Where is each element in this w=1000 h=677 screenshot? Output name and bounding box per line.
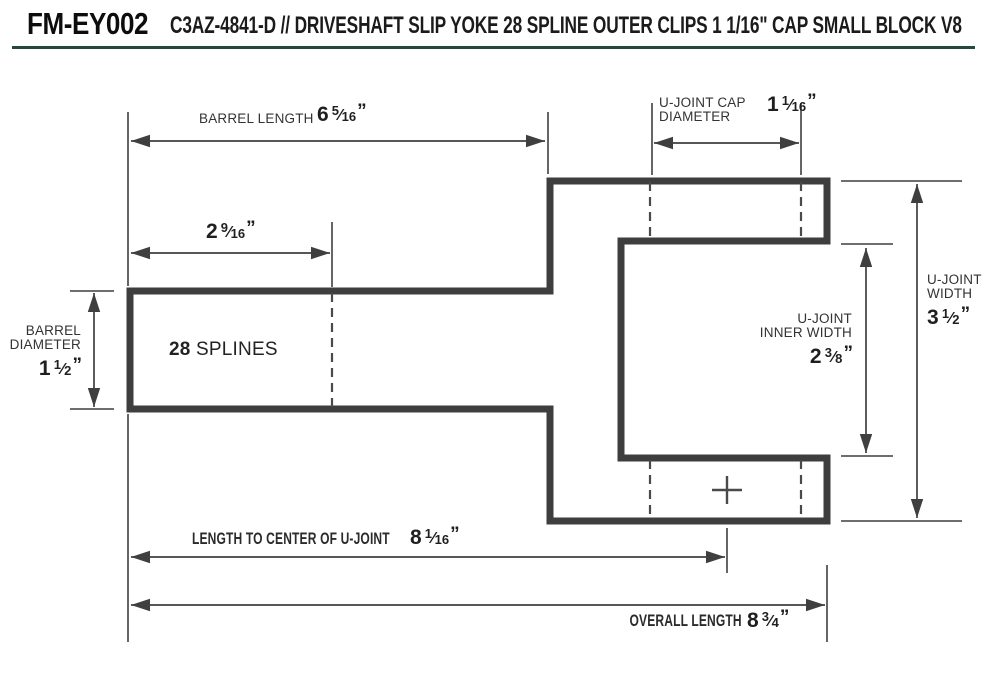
splines-note: 28 SPLINES	[169, 339, 278, 361]
length-to-center-value: 81⁄16”	[410, 525, 459, 548]
barrel-length-label: BARREL LENGTH	[199, 112, 314, 126]
inner-width-label: U-JOINT INNER WIDTH 23⁄8”	[760, 312, 852, 367]
spline-length-value: 29⁄16”	[206, 219, 255, 242]
ujoint-center-cross	[712, 476, 742, 504]
barrel-diameter-value: 11⁄2”	[10, 356, 81, 379]
length-to-center-label: LENGTH TO CENTER OF U-JOINT	[192, 530, 390, 549]
overall-length-label: OVERALL LENGTH	[630, 612, 742, 631]
cap-diameter-value: 11⁄16”	[767, 92, 816, 115]
barrel-length-value: 65⁄16”	[317, 102, 366, 125]
page: FM-EY002 C3AZ-4841-D // DRIVESHAFT SLIP …	[0, 0, 1000, 677]
ujoint-width-label: U-JOINT WIDTH 31⁄2”	[927, 273, 982, 328]
ujoint-width-value: 31⁄2”	[927, 305, 982, 328]
hidden-lines	[332, 182, 801, 519]
overall-length-value: 83⁄4”	[747, 608, 788, 631]
cap-diameter-label: U-JOINT CAP DIAMETER	[659, 96, 746, 124]
inner-width-value: 23⁄8”	[760, 344, 852, 367]
barrel-diameter-label: BARREL DIAMETER 11⁄2”	[10, 324, 81, 379]
